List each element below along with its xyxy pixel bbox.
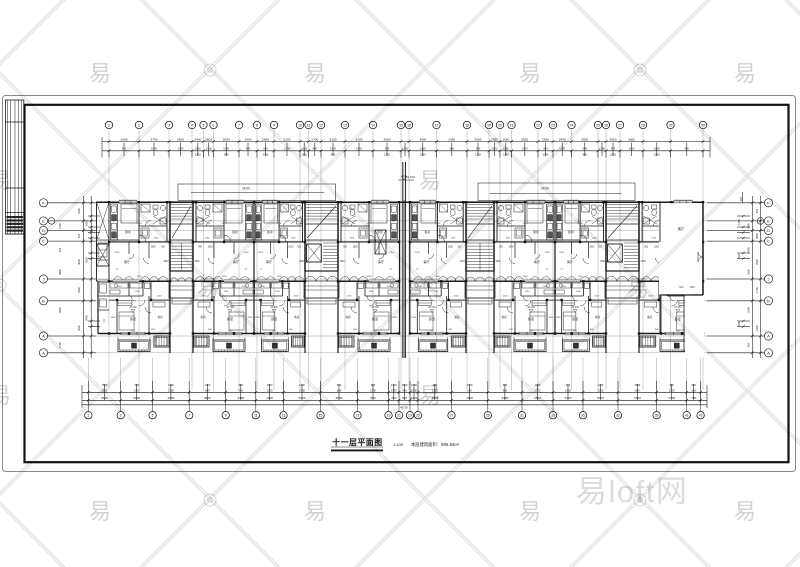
svg-text:4500: 4500 — [747, 223, 751, 229]
svg-text:卧室: 卧室 — [271, 316, 277, 321]
svg-text:1200: 1200 — [195, 152, 201, 156]
svg-text:1350: 1350 — [599, 147, 605, 151]
svg-text:7110: 7110 — [679, 287, 685, 289]
svg-text:3800: 3800 — [755, 233, 759, 239]
svg-text:400: 400 — [755, 208, 759, 213]
svg-text:29: 29 — [486, 414, 490, 418]
svg-text:易: 易 — [304, 499, 326, 524]
svg-text:1200: 1200 — [168, 388, 174, 392]
svg-text:1400: 1400 — [58, 223, 62, 229]
svg-text:900: 900 — [135, 383, 140, 387]
svg-text:2800: 2800 — [205, 137, 212, 141]
svg-text:1: 1 — [87, 414, 89, 418]
svg-text:J: J — [43, 277, 45, 282]
svg-text:600: 600 — [263, 147, 268, 151]
svg-text:书房: 书房 — [294, 315, 300, 319]
svg-text:1800: 1800 — [288, 247, 294, 249]
svg-text:3600: 3600 — [628, 137, 635, 141]
svg-text:1350: 1350 — [205, 238, 211, 240]
svg-text:13: 13 — [343, 123, 347, 127]
svg-text:39: 39 — [655, 414, 659, 418]
svg-text:1500: 1500 — [195, 147, 201, 151]
svg-text:600: 600 — [503, 383, 508, 387]
svg-text:1350: 1350 — [506, 238, 512, 240]
svg-text:600: 600 — [331, 152, 336, 156]
svg-text:2350: 2350 — [284, 137, 291, 141]
svg-text:4500: 4500 — [460, 261, 466, 263]
svg-text:4300: 4300 — [411, 396, 418, 400]
svg-text:3300: 3300 — [634, 396, 641, 400]
svg-text:1200: 1200 — [503, 296, 509, 298]
svg-text:3400: 3400 — [501, 396, 508, 400]
svg-text:书房: 书房 — [595, 315, 601, 319]
svg-text:900: 900 — [385, 147, 390, 151]
svg-text:17: 17 — [356, 414, 360, 418]
svg-text:卧室: 卧室 — [377, 230, 383, 234]
svg-text:750: 750 — [391, 396, 396, 400]
svg-text:卧室: 卧室 — [533, 230, 539, 234]
svg-text:1600: 1600 — [85, 220, 89, 226]
svg-text:25: 25 — [416, 414, 420, 418]
svg-text:37: 37 — [616, 414, 620, 418]
svg-text:1500: 1500 — [654, 152, 660, 156]
svg-text:2100: 2100 — [242, 286, 248, 288]
svg-text:1350: 1350 — [451, 238, 457, 240]
svg-text:21: 21 — [510, 123, 514, 127]
svg-text:600: 600 — [467, 388, 472, 392]
svg-text:18: 18 — [465, 123, 469, 127]
svg-text:2600: 2600 — [177, 137, 184, 141]
svg-text:20.000: 20.000 — [129, 306, 137, 309]
svg-text:4500: 4500 — [339, 261, 345, 263]
svg-text:客厅: 客厅 — [423, 259, 429, 264]
svg-text:2700: 2700 — [311, 137, 318, 141]
svg-text:1200: 1200 — [168, 383, 174, 387]
svg-text:书房: 书房 — [200, 315, 206, 319]
svg-text:900: 900 — [543, 147, 548, 151]
svg-text:9: 9 — [273, 123, 275, 127]
svg-text:3100: 3100 — [330, 137, 337, 141]
svg-text:10: 10 — [298, 123, 302, 127]
svg-text:客厅: 客厅 — [124, 259, 130, 264]
svg-text:卧室: 卧室 — [425, 230, 431, 234]
svg-text:4500: 4500 — [194, 261, 200, 263]
svg-text:1160: 1160 — [525, 291, 530, 293]
svg-text:1500: 1500 — [222, 276, 228, 278]
svg-text:2000: 2000 — [223, 137, 230, 141]
svg-text:900: 900 — [503, 388, 508, 392]
svg-text:1050: 1050 — [522, 147, 528, 151]
svg-text:900: 900 — [337, 388, 342, 392]
svg-text:2900: 2900 — [549, 317, 555, 319]
svg-text:1400: 1400 — [755, 325, 759, 331]
svg-text:3700: 3700 — [151, 137, 158, 141]
svg-text:7: 7 — [238, 123, 240, 127]
svg-text:2600: 2600 — [523, 223, 529, 225]
svg-text:1350: 1350 — [356, 147, 362, 151]
svg-text:易loft网: 易loft网 — [576, 474, 688, 509]
svg-text:1900: 1900 — [245, 137, 252, 141]
svg-text:20.000: 20.000 — [674, 306, 682, 309]
svg-text:1160: 1160 — [135, 291, 140, 293]
svg-text:600: 600 — [239, 388, 244, 392]
svg-text:卧室: 卧室 — [528, 316, 534, 321]
svg-text:1500: 1500 — [267, 383, 273, 387]
svg-text:1:100: 1:100 — [393, 442, 404, 447]
svg-text:9: 9 — [225, 414, 227, 418]
svg-text:3400: 3400 — [237, 396, 244, 400]
svg-text:2450: 2450 — [559, 137, 566, 141]
svg-text:900: 900 — [224, 152, 229, 156]
svg-text:1800: 1800 — [508, 247, 514, 249]
svg-text:3400: 3400 — [266, 396, 273, 400]
svg-text:1050: 1050 — [598, 388, 604, 392]
svg-text:1500: 1500 — [301, 147, 307, 151]
svg-text:客厅: 客厅 — [567, 259, 573, 264]
svg-text:1500: 1500 — [137, 276, 143, 278]
svg-text:易: 易 — [304, 61, 326, 86]
svg-text:16: 16 — [407, 123, 411, 127]
svg-text:1350: 1350 — [391, 388, 397, 392]
svg-text:1300: 1300 — [206, 147, 212, 151]
svg-text:E: E — [767, 219, 770, 224]
svg-text:11: 11 — [307, 123, 311, 127]
svg-text:卧室: 卧室 — [572, 316, 578, 321]
svg-text:24: 24 — [570, 123, 574, 127]
svg-text:4500: 4500 — [600, 261, 606, 263]
svg-text:4500: 4500 — [77, 259, 81, 265]
svg-text:1350: 1350 — [263, 152, 269, 156]
svg-text:27: 27 — [618, 123, 622, 127]
svg-text:30: 30 — [701, 123, 705, 127]
svg-text:2100: 2100 — [561, 286, 567, 288]
svg-text:B: B — [767, 298, 770, 303]
svg-text:1350: 1350 — [651, 238, 657, 240]
svg-text:1350: 1350 — [291, 238, 297, 240]
svg-text:2100: 2100 — [387, 286, 393, 288]
svg-text:29: 29 — [669, 123, 673, 127]
svg-text:2200: 2200 — [415, 252, 421, 254]
svg-text:2400: 2400 — [194, 137, 201, 141]
svg-text:750: 750 — [691, 396, 696, 400]
svg-text:20.000: 20.000 — [527, 306, 535, 309]
svg-text:易: 易 — [89, 499, 111, 524]
svg-text:1200: 1200 — [594, 296, 600, 298]
svg-text:2600: 2600 — [277, 223, 283, 225]
svg-text:1500: 1500 — [301, 152, 307, 156]
svg-text:1200: 1200 — [299, 383, 305, 387]
svg-text:5: 5 — [203, 123, 205, 127]
svg-text:900: 900 — [747, 342, 751, 347]
svg-text:3000: 3000 — [372, 348, 378, 350]
svg-text:900: 900 — [205, 388, 210, 392]
svg-text:2400: 2400 — [737, 321, 741, 327]
svg-text:2900: 2900 — [755, 259, 759, 265]
svg-text:46700: 46700 — [400, 406, 408, 410]
svg-text:1300: 1300 — [134, 388, 140, 392]
svg-text:1800: 1800 — [448, 247, 454, 249]
svg-text:4300: 4300 — [167, 396, 174, 400]
svg-text:300: 300 — [737, 253, 741, 258]
svg-text:4500: 4500 — [163, 261, 169, 263]
svg-text:A: A — [767, 334, 770, 339]
svg-text:3900: 3900 — [133, 396, 140, 400]
svg-text:1800: 1800 — [207, 247, 213, 249]
svg-text:4500: 4500 — [299, 261, 305, 263]
svg-text:1700: 1700 — [755, 287, 759, 293]
svg-text:900: 900 — [239, 383, 244, 387]
svg-text:卧室: 卧室 — [267, 230, 273, 234]
svg-text:2200: 2200 — [545, 252, 551, 254]
svg-text:易: 易 — [734, 61, 756, 86]
svg-text:客厅: 客厅 — [266, 259, 272, 264]
svg-text:1500: 1500 — [299, 388, 305, 392]
svg-text:27: 27 — [450, 414, 454, 418]
svg-text:1350: 1350 — [205, 383, 211, 387]
svg-text:900: 900 — [370, 396, 375, 400]
svg-text:1200: 1200 — [178, 147, 184, 151]
svg-text:900: 900 — [77, 233, 81, 238]
svg-text:6: 6 — [213, 123, 215, 127]
svg-text:书房: 书房 — [647, 315, 653, 319]
svg-text:4300: 4300 — [466, 396, 473, 400]
svg-text:3900: 3900 — [384, 137, 391, 141]
svg-text:31: 31 — [520, 414, 524, 418]
svg-text:2900: 2900 — [262, 137, 269, 141]
svg-text:2200: 2200 — [77, 208, 81, 214]
svg-text:1: 1 — [108, 123, 110, 127]
svg-text:1500: 1500 — [689, 287, 695, 289]
svg-text:1400: 1400 — [737, 219, 741, 225]
svg-text:2950: 2950 — [542, 137, 549, 141]
svg-text:600: 600 — [337, 383, 342, 387]
svg-text:1500: 1500 — [565, 388, 571, 392]
svg-text:8: 8 — [256, 123, 258, 127]
svg-text:1200: 1200 — [347, 296, 353, 298]
svg-text:2900: 2900 — [255, 317, 261, 319]
svg-text:2100: 2100 — [543, 286, 549, 288]
svg-text:客厅: 客厅 — [678, 226, 685, 231]
svg-text:本层建筑面积：885.94m²: 本层建筑面积：885.94m² — [411, 441, 460, 448]
svg-text:卧室: 卧室 — [372, 316, 378, 321]
svg-text:2200: 2200 — [244, 252, 250, 254]
svg-text:43: 43 — [699, 414, 703, 418]
svg-text:900: 900 — [739, 196, 743, 201]
svg-text:21: 21 — [397, 414, 401, 418]
svg-text:1200: 1200 — [475, 152, 481, 156]
svg-text:20.000: 20.000 — [371, 306, 379, 309]
svg-text:28: 28 — [641, 123, 645, 127]
svg-text:900: 900 — [246, 147, 251, 151]
svg-text:3800: 3800 — [336, 396, 343, 400]
svg-text:十一层平面图: 十一层平面图 — [332, 437, 382, 447]
svg-text:易: 易 — [519, 499, 541, 524]
svg-text:1500: 1500 — [277, 276, 283, 278]
svg-text:4500: 4500 — [495, 261, 501, 263]
svg-text:3: 3 — [120, 414, 122, 418]
svg-text:2200: 2200 — [747, 307, 751, 313]
svg-text:600: 600 — [450, 147, 455, 151]
svg-text:3400: 3400 — [419, 137, 426, 141]
svg-text:26: 26 — [604, 123, 608, 127]
svg-text:15: 15 — [399, 123, 403, 127]
svg-text:1160: 1160 — [224, 291, 229, 293]
svg-text:1200: 1200 — [467, 383, 473, 387]
svg-text:A: A — [42, 350, 45, 355]
svg-text:12: 12 — [319, 123, 323, 127]
svg-text:1050: 1050 — [420, 152, 426, 156]
svg-text:卧室: 卧室 — [125, 230, 131, 234]
svg-text:C: C — [767, 239, 770, 244]
svg-text:5: 5 — [152, 414, 154, 418]
svg-text:2050: 2050 — [521, 137, 528, 141]
svg-text:4300: 4300 — [565, 396, 572, 400]
svg-text:600: 600 — [402, 396, 407, 400]
svg-text:1200: 1200 — [669, 388, 675, 392]
svg-text:4500: 4500 — [641, 261, 647, 263]
svg-text:1160: 1160 — [576, 291, 581, 293]
svg-text:1500: 1500 — [578, 276, 584, 278]
svg-text:17: 17 — [435, 123, 439, 127]
svg-text:1500: 1500 — [435, 276, 441, 278]
svg-text:1200: 1200 — [492, 147, 498, 151]
svg-text:A: A — [767, 350, 770, 355]
svg-text:1200: 1200 — [420, 147, 426, 151]
svg-text:易: 易 — [89, 61, 111, 86]
svg-text:3500: 3500 — [77, 325, 81, 331]
svg-text:900: 900 — [122, 147, 127, 151]
svg-text:1200: 1200 — [267, 388, 273, 392]
svg-text:3500: 3500 — [747, 269, 751, 275]
svg-text:客厅: 客厅 — [534, 259, 540, 264]
svg-text:卧室: 卧室 — [429, 316, 435, 321]
svg-text:3000: 3000 — [431, 348, 437, 350]
svg-text:1500: 1500 — [654, 147, 660, 151]
svg-text:1500: 1500 — [411, 388, 417, 392]
svg-text:1200: 1200 — [330, 147, 336, 151]
svg-text:2400: 2400 — [85, 315, 89, 321]
svg-text:41: 41 — [685, 414, 689, 418]
svg-text:卧室: 卧室 — [568, 230, 574, 234]
svg-text:2200: 2200 — [559, 252, 565, 254]
svg-text:1200: 1200 — [453, 296, 459, 298]
svg-text:1800: 1800 — [352, 247, 358, 249]
svg-text:易: 易 — [197, 276, 219, 301]
svg-text:20.000: 20.000 — [428, 306, 436, 309]
svg-text:1350: 1350 — [350, 238, 356, 240]
svg-text:2900: 2900 — [248, 317, 254, 319]
svg-text:600: 600 — [583, 147, 588, 151]
svg-text:16.100: 16.100 — [406, 175, 415, 179]
svg-text:2400: 2400 — [77, 287, 81, 293]
svg-text:卧室: 卧室 — [232, 230, 238, 234]
svg-text:3050: 3050 — [610, 137, 617, 141]
svg-text:23: 23 — [408, 414, 412, 418]
svg-text:1800: 1800 — [150, 247, 156, 249]
svg-text:900: 900 — [685, 147, 690, 151]
svg-text:B: B — [42, 298, 45, 303]
svg-text:20: 20 — [498, 123, 502, 127]
svg-text:易: 易 — [519, 61, 541, 86]
svg-text:1200: 1200 — [157, 296, 163, 298]
svg-text:1500: 1500 — [402, 147, 408, 151]
svg-text:1200: 1200 — [543, 152, 549, 156]
svg-text:1500: 1500 — [634, 383, 640, 387]
svg-text:900: 900 — [692, 383, 697, 387]
svg-text:3800: 3800 — [58, 269, 62, 275]
svg-text:5000: 5000 — [597, 396, 604, 400]
svg-text:1160: 1160 — [275, 291, 280, 293]
svg-text:C: C — [42, 239, 45, 244]
svg-text:1500: 1500 — [367, 276, 373, 278]
svg-text:900: 900 — [371, 383, 376, 387]
svg-text:13: 13 — [282, 414, 286, 418]
svg-text:35: 35 — [581, 414, 585, 418]
svg-text:3000: 3000 — [674, 348, 680, 350]
svg-text:2900: 2900 — [556, 317, 562, 319]
svg-text:2900: 2900 — [58, 307, 62, 313]
svg-text:1700: 1700 — [668, 396, 675, 400]
svg-text:2900: 2900 — [393, 317, 399, 319]
svg-text:书房: 书房 — [157, 315, 163, 319]
svg-text:1200: 1200 — [223, 147, 229, 151]
svg-text:19: 19 — [487, 123, 491, 127]
svg-text:1500: 1500 — [610, 152, 616, 156]
svg-text:19: 19 — [387, 414, 391, 418]
svg-text:1500: 1500 — [523, 276, 529, 278]
svg-text:卧室: 卧室 — [130, 316, 136, 321]
svg-text:22: 22 — [536, 123, 540, 127]
svg-text:客厅: 客厅 — [378, 259, 384, 264]
svg-text:2450: 2450 — [448, 137, 455, 141]
svg-text:3800: 3800 — [204, 396, 211, 400]
svg-text:易: 易 — [419, 168, 441, 193]
svg-text:900: 900 — [670, 383, 675, 387]
svg-text:书房: 书房 — [501, 315, 507, 319]
svg-text:2500: 2500 — [475, 137, 482, 141]
svg-text:24.00: 24.00 — [242, 187, 250, 191]
svg-text:11: 11 — [254, 414, 258, 418]
svg-text:2600: 2600 — [137, 223, 143, 225]
svg-text:20.000: 20.000 — [571, 306, 579, 309]
svg-text:4100: 4100 — [85, 257, 89, 263]
svg-text:1500: 1500 — [151, 147, 157, 151]
svg-text:2900: 2900 — [411, 317, 417, 319]
svg-text:5400: 5400 — [299, 396, 306, 400]
svg-text:2600: 2600 — [222, 223, 228, 225]
svg-text:2200: 2200 — [258, 252, 264, 254]
svg-text:15: 15 — [319, 414, 323, 418]
svg-text:20.000: 20.000 — [270, 306, 278, 309]
svg-text:易: 易 — [0, 383, 11, 408]
svg-text:1050: 1050 — [411, 383, 417, 387]
svg-text:2900: 2900 — [111, 317, 117, 319]
svg-text:7: 7 — [188, 414, 190, 418]
svg-text:400: 400 — [58, 247, 62, 252]
svg-text:1200: 1200 — [293, 296, 299, 298]
svg-text:1200: 1200 — [629, 147, 635, 151]
svg-text:2400: 2400 — [747, 247, 751, 253]
svg-text:900: 900 — [611, 147, 616, 151]
svg-text:1650: 1650 — [502, 137, 509, 141]
svg-text:1800: 1800 — [589, 247, 595, 249]
svg-text:书房: 书房 — [345, 315, 351, 319]
svg-text:卫: 卫 — [103, 320, 106, 323]
svg-text:4: 4 — [191, 123, 193, 127]
svg-text:3000: 3000 — [528, 348, 534, 350]
svg-text:3000: 3000 — [227, 348, 233, 350]
svg-text:易: 易 — [627, 276, 649, 301]
